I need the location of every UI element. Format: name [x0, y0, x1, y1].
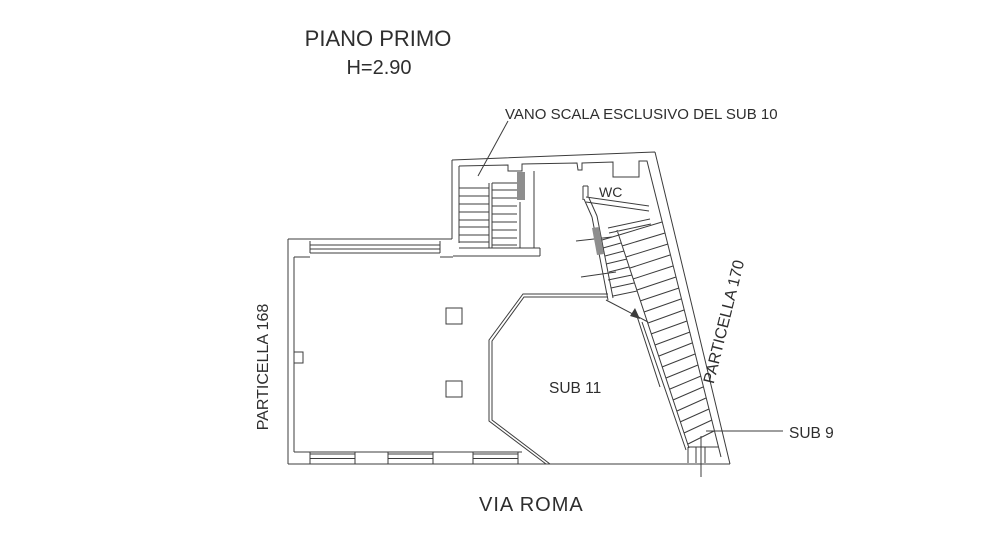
stairwell	[453, 171, 540, 256]
sub11-label: SUB 11	[549, 380, 601, 397]
stair-note-label: VANO SCALA ESCLUSIVO DEL SUB 10	[505, 106, 778, 123]
plan-title: PIANO PRIMO	[305, 26, 452, 51]
street-label: VIA ROMA	[479, 494, 584, 516]
stairwell-door-fill	[517, 172, 525, 200]
sub9-label: SUB 9	[789, 425, 834, 442]
diagonal-staircase	[602, 219, 718, 477]
particella-168-label: PARTICELLA 168	[255, 304, 272, 431]
pillars	[446, 308, 462, 397]
exterior-walls	[288, 152, 730, 464]
interior-wall-lines	[294, 161, 721, 457]
top-ribbon-window	[294, 241, 453, 257]
entrance-wall	[576, 198, 616, 300]
plan-height: H=2.90	[346, 57, 411, 79]
particella-170-label: PARTICELLA 170	[701, 258, 748, 385]
floor-plan-page: { "colors": { "line": "#3c3c3c", "text":…	[0, 0, 1000, 550]
street-windows	[310, 452, 518, 464]
floor-plan: PIANO PRIMO H=2.90 VANO SCALA ESCLUSIVO …	[0, 0, 1000, 550]
sub11-partition	[489, 294, 608, 464]
stair-note-leader	[478, 121, 508, 176]
wc-label: WC	[599, 184, 622, 200]
